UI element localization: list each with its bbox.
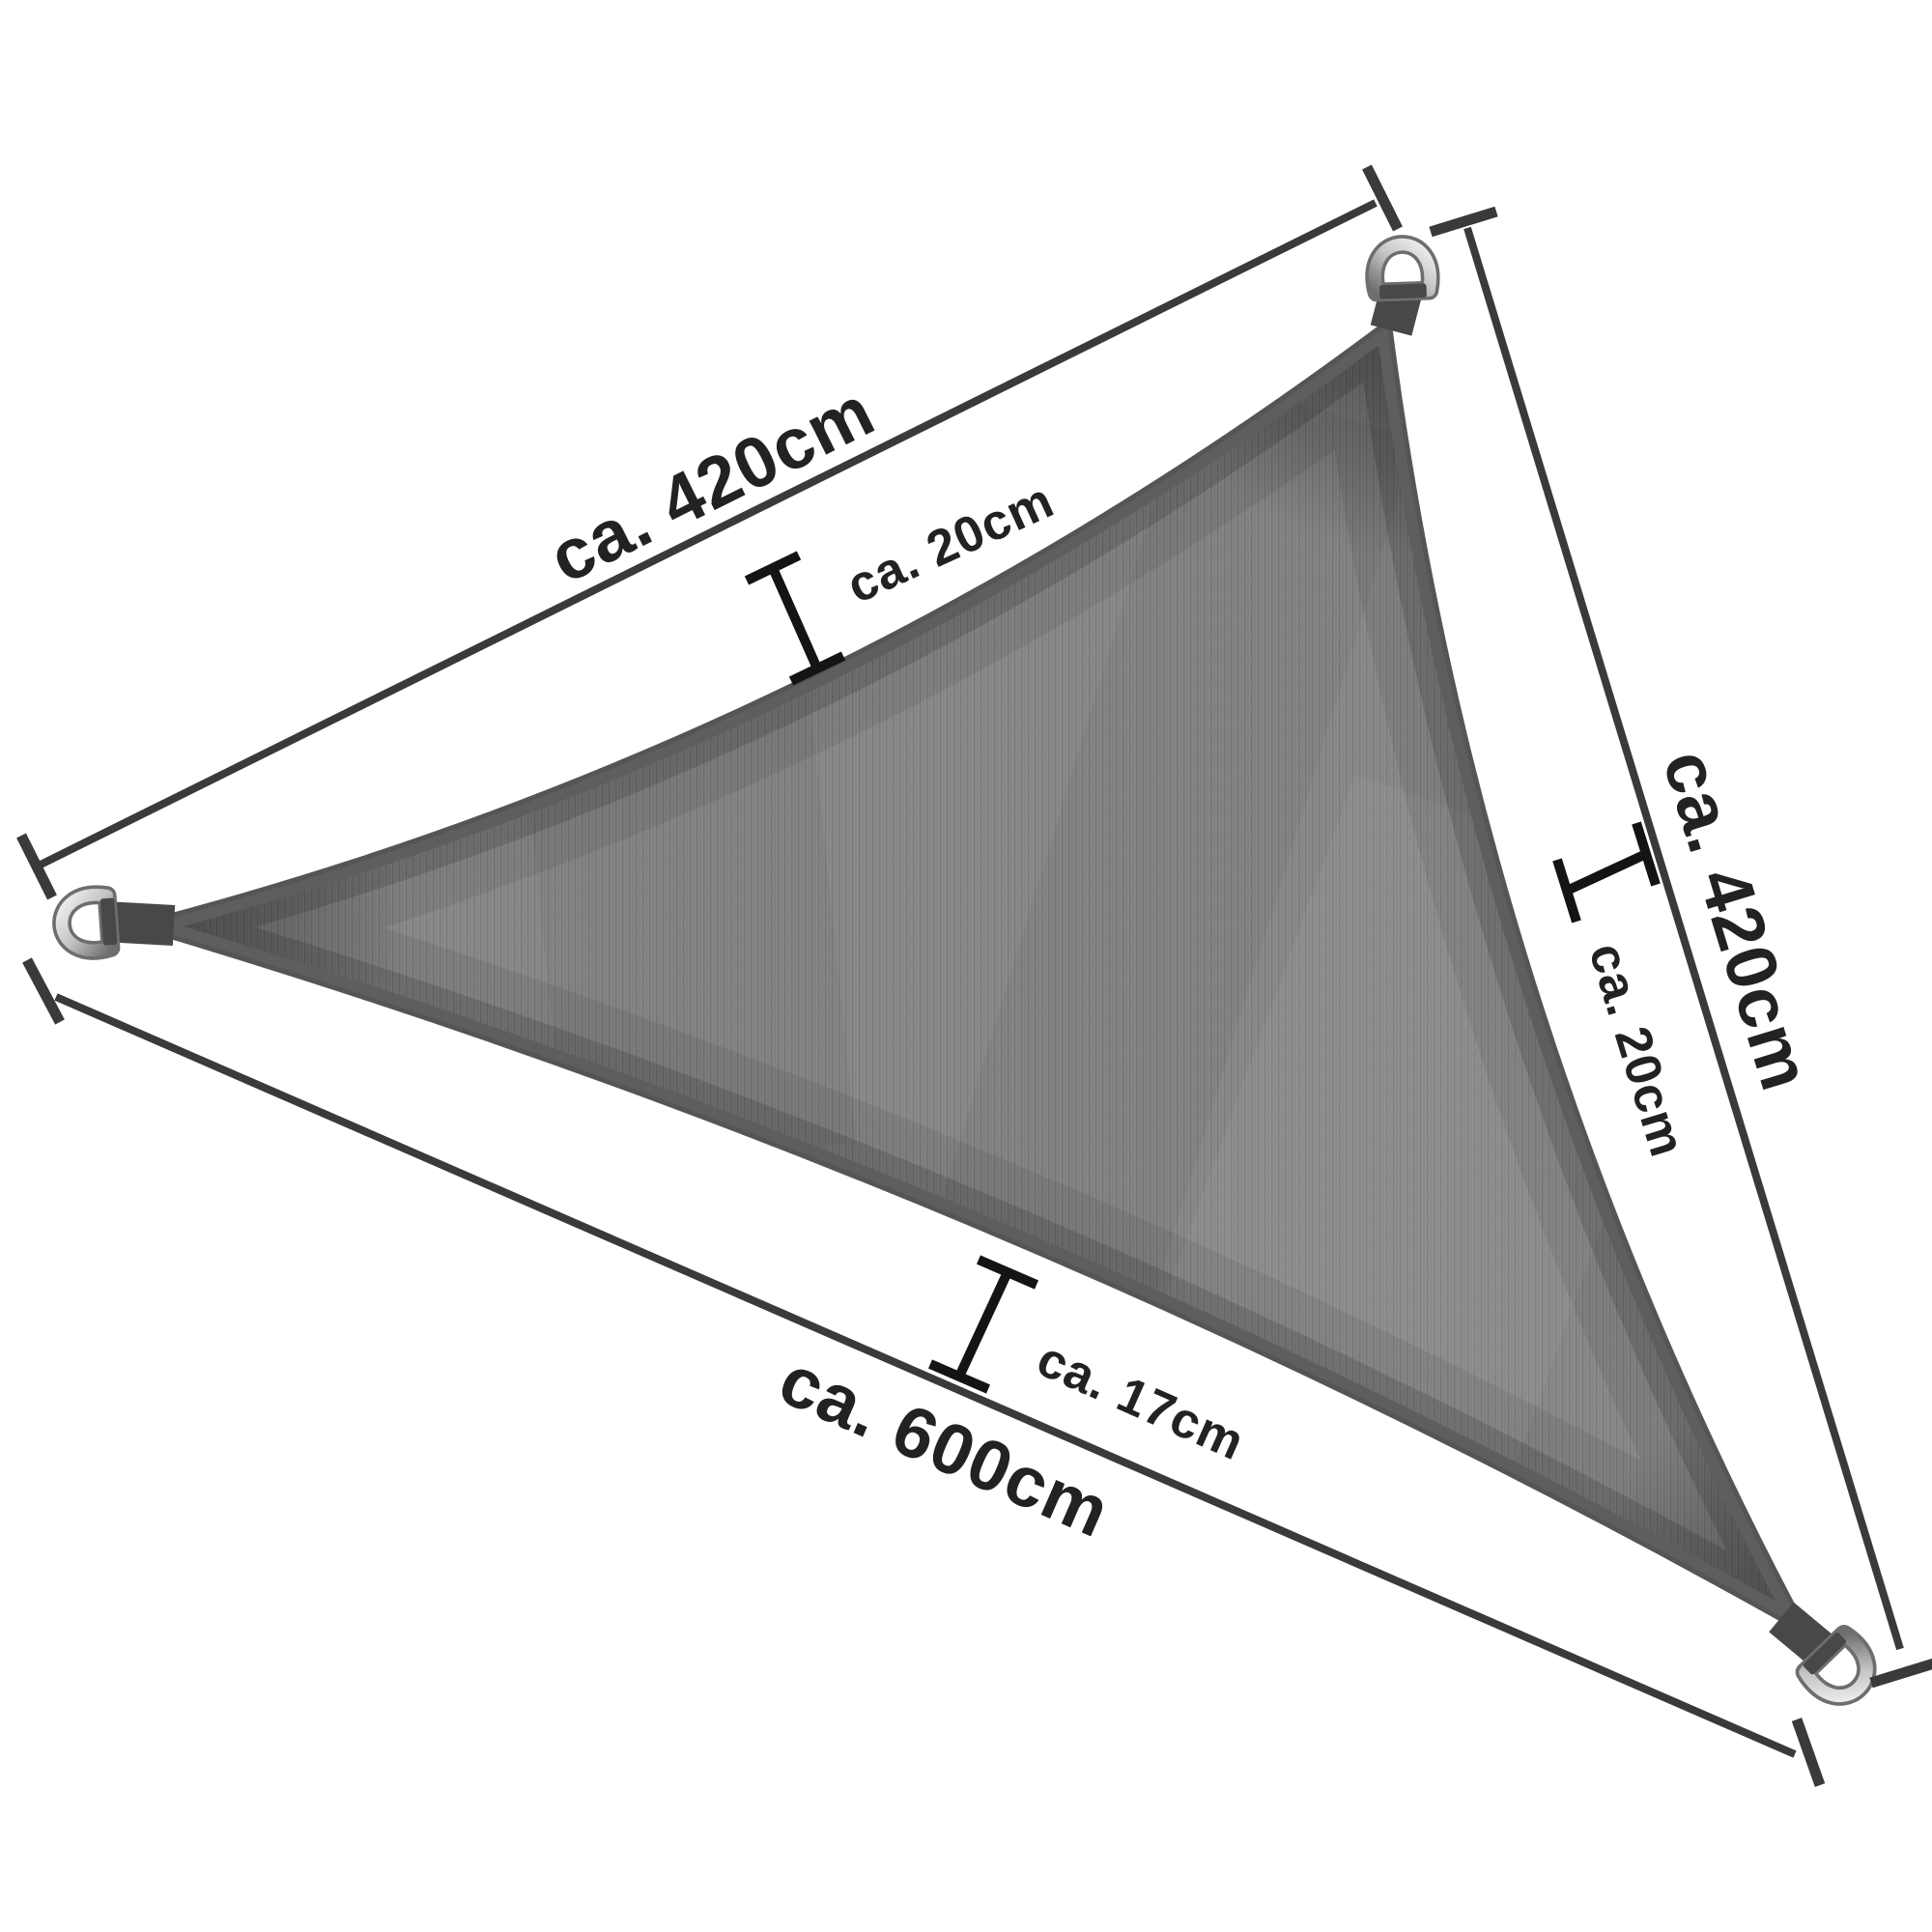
diagram-canvas: ca. 420cm ca. 420cm ca. 600cm ca. 20cm c… [0,0,1932,1932]
shade-sail-dimension-diagram: ca. 420cm ca. 420cm ca. 600cm ca. 20cm c… [0,0,1932,1932]
